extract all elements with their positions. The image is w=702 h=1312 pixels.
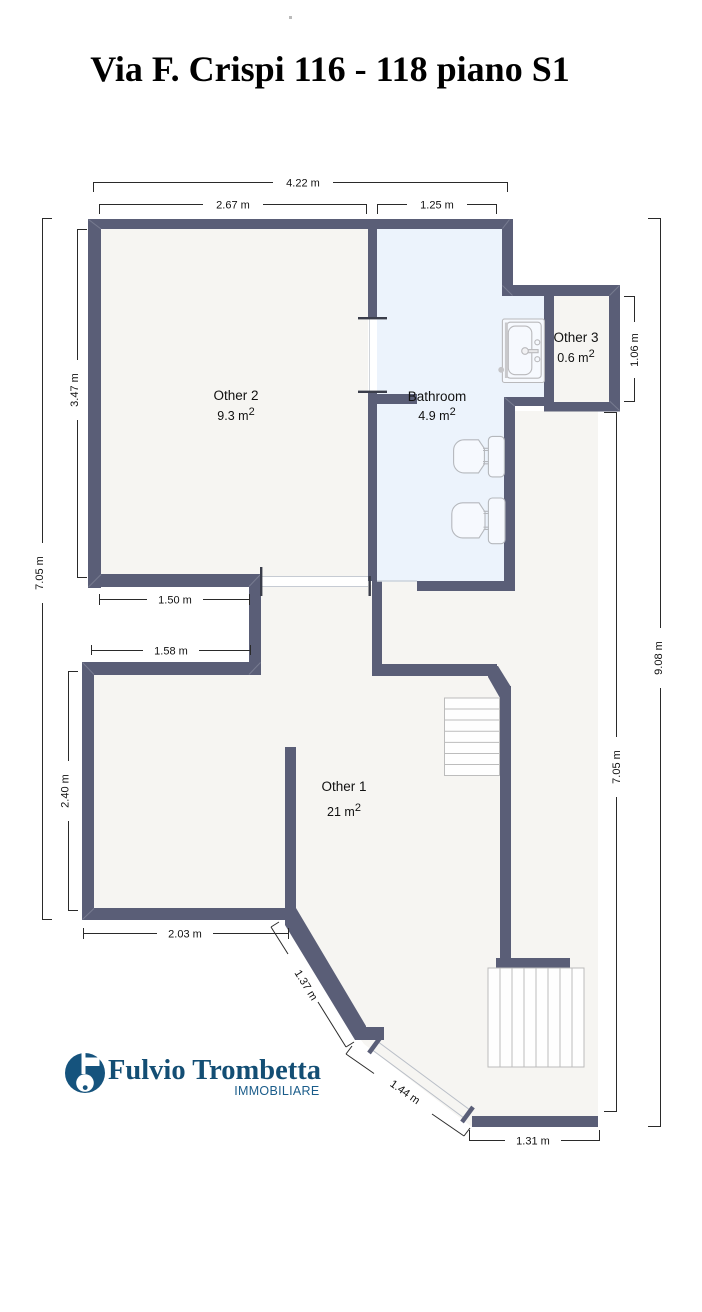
svg-text:Other 1: Other 1 [321, 779, 366, 794]
svg-text:4.22 m: 4.22 m [286, 178, 320, 190]
svg-text:1.31 m: 1.31 m [516, 1136, 550, 1148]
svg-text:2.67 m: 2.67 m [216, 200, 250, 212]
svg-text:Other 2: Other 2 [213, 388, 258, 403]
svg-text:Other 3: Other 3 [553, 330, 598, 345]
svg-text:Via F. Crispi 116 - 118 piano: Via F. Crispi 116 - 118 piano S1 [90, 49, 569, 89]
svg-text:9.08 m: 9.08 m [653, 641, 665, 675]
svg-text:2.40 m: 2.40 m [60, 774, 72, 808]
svg-text:2.03 m: 2.03 m [168, 929, 202, 941]
svg-text:1.58 m: 1.58 m [154, 646, 188, 658]
svg-text:7.05 m: 7.05 m [611, 750, 623, 784]
svg-text:1.06 m: 1.06 m [629, 333, 641, 367]
svg-text:1.25 m: 1.25 m [420, 200, 454, 212]
svg-text:1.50 m: 1.50 m [158, 595, 192, 607]
svg-text:Fulvio Trombetta: Fulvio Trombetta [108, 1055, 321, 1086]
svg-text:3.47 m: 3.47 m [69, 373, 81, 407]
svg-text:IMMOBILIARE: IMMOBILIARE [234, 1084, 319, 1098]
svg-text:7.05 m: 7.05 m [34, 556, 46, 590]
svg-text:Bathroom: Bathroom [408, 389, 467, 404]
